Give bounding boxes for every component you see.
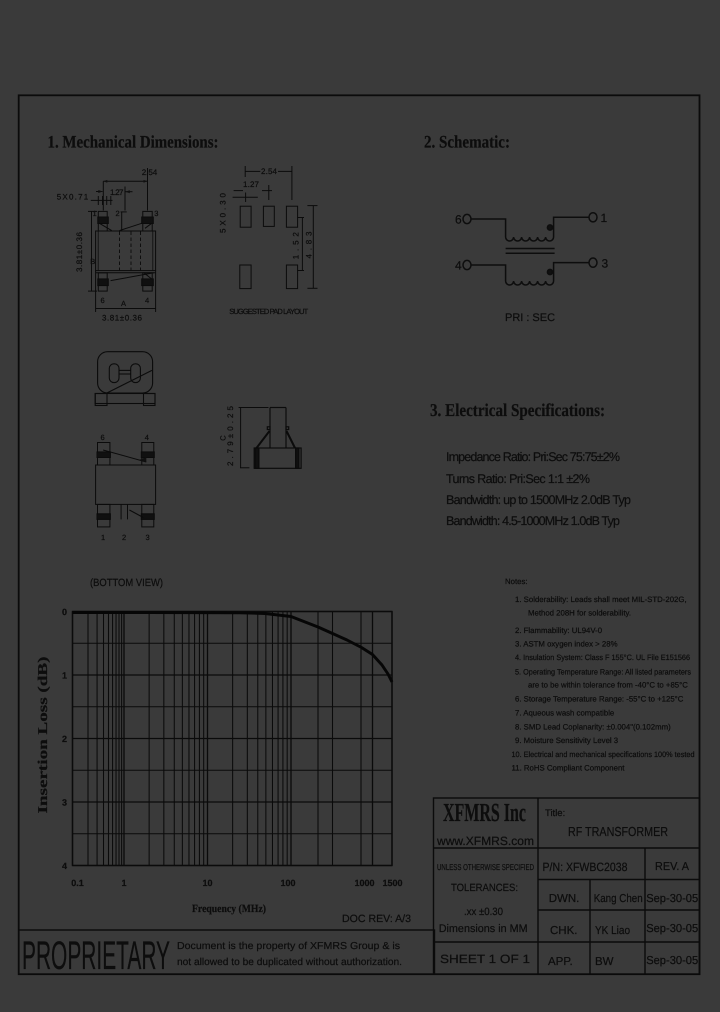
svg-text:.xx ±0.30: .xx ±0.30 (464, 906, 503, 918)
svg-text:REV. A: REV. A (655, 861, 689, 873)
svg-text:Frequency (MHz): Frequency (MHz) (192, 903, 266, 915)
svg-text:UNLESS OTHERWISE SPECIFIED: UNLESS OTHERWISE SPECIFIED (437, 862, 534, 872)
svg-text:3: 3 (154, 209, 158, 218)
svg-text:C: C (219, 435, 228, 441)
svg-text:XFMRS Inc: XFMRS Inc (443, 798, 526, 827)
svg-text:6: 6 (455, 213, 462, 227)
svg-text:Sep-30-05: Sep-30-05 (646, 923, 698, 935)
svg-text:1: 1 (121, 878, 126, 888)
svg-text:9. Moisture Sensitivity Level: 9. Moisture Sensitivity Level 3 (515, 736, 618, 745)
svg-text:Document is the property of XF: Document is the property of XFMRS Group … (177, 941, 400, 952)
svg-text:3: 3 (62, 798, 67, 808)
svg-text:3. Electrical Specifications: 3. Electrical Specifications: (430, 400, 605, 420)
svg-text:Insertion Loss (dB): Insertion Loss (dB) (35, 657, 50, 814)
svg-text:2: 2 (62, 734, 67, 744)
svg-text:TOLERANCES:: TOLERANCES: (451, 882, 518, 894)
svg-text:SHEET 1 OF 1: SHEET 1 OF 1 (440, 952, 530, 966)
svg-text:3. ASTM oxygen index > 28%: 3. ASTM oxygen index > 28% (515, 640, 618, 649)
svg-text:2. Schematic:: 2. Schematic: (424, 132, 510, 152)
svg-text:2.54: 2.54 (142, 168, 158, 177)
svg-text:PRI : SEC: PRI : SEC (505, 312, 555, 324)
svg-text:(BOTTOM VIEW): (BOTTOM VIEW) (90, 577, 163, 589)
svg-text:4: 4 (145, 296, 149, 305)
svg-text:1: 1 (62, 671, 67, 681)
svg-text:Sep-30-05: Sep-30-05 (646, 955, 698, 967)
svg-text:3.81±0.36: 3.81±0.36 (102, 314, 143, 323)
svg-text:2: 2 (122, 533, 126, 542)
svg-text:Impedance Ratio: Pri:Sec 75:75: Impedance Ratio: Pri:Sec 75:75±2% (446, 450, 620, 464)
svg-text:Dimensions in MM: Dimensions in MM (439, 923, 528, 935)
svg-text:not allowed to be duplicated w: not allowed to be duplicated without aut… (177, 957, 402, 968)
svg-text:7. Aqueous wash compatible: 7. Aqueous wash compatible (515, 709, 614, 718)
svg-text:6: 6 (101, 433, 105, 442)
svg-text:P/N: XFWBC2038: P/N: XFWBC2038 (543, 860, 628, 874)
svg-text:APP.: APP. (548, 956, 573, 968)
svg-text:1.52: 1.52 (292, 232, 301, 260)
svg-text:DOC REV: A/3: DOC REV: A/3 (342, 913, 411, 925)
svg-text:2: 2 (116, 209, 120, 218)
svg-text:100: 100 (280, 878, 295, 888)
svg-text:10. Electrical and mechanical: 10. Electrical and mechanical specificat… (512, 750, 695, 759)
svg-text:3: 3 (602, 257, 609, 271)
svg-text:1. Solderability: Leads shall: 1. Solderability: Leads shall meet MIL-S… (515, 595, 687, 604)
svg-text:1: 1 (601, 211, 608, 225)
svg-text:6. Storage Temperature Range:: 6. Storage Temperature Range: -55°C to +… (515, 695, 684, 704)
svg-text:0: 0 (62, 607, 67, 617)
svg-text:Bandwidth: 4.5-1000MHz 1.0dB T: Bandwidth: 4.5-1000MHz 1.0dB Typ (446, 514, 620, 528)
svg-text:1. Mechanical Dimensions:: 1. Mechanical Dimensions: (48, 132, 219, 152)
svg-text:4.83: 4.83 (305, 231, 314, 259)
svg-text:6: 6 (101, 296, 105, 305)
svg-text:1.27: 1.27 (110, 188, 124, 197)
svg-text:PROPRIETARY: PROPRIETARY (22, 934, 170, 978)
svg-text:Method 208H for solderability.: Method 208H for solderability. (528, 609, 631, 618)
svg-text:0.1: 0.1 (71, 878, 84, 888)
svg-text:DWN.: DWN. (549, 893, 580, 905)
svg-text:Bandwidth: up to 1500MHz 2.0dB: Bandwidth: up to 1500MHz 2.0dB Typ (446, 493, 631, 507)
svg-text:4: 4 (145, 433, 149, 442)
svg-text:8. SMD Lead Coplanarity: ±0.0: 8. SMD Lead Coplanarity: ±0.004"(0.102mm… (515, 723, 671, 732)
svg-text:1000: 1000 (354, 878, 374, 888)
svg-text:3.81±0.36: 3.81±0.36 (75, 231, 84, 272)
svg-text:1500: 1500 (382, 878, 402, 888)
svg-text:11. RoHS Compliant Component: 11. RoHS Compliant Component (512, 764, 626, 773)
svg-text:BW: BW (595, 956, 614, 968)
svg-text:1.27: 1.27 (243, 180, 260, 189)
svg-text:1: 1 (101, 533, 105, 542)
svg-text:5X0.30: 5X0.30 (219, 192, 228, 233)
svg-text:5. Operating Temperature Rang: 5. Operating Temperature Range: All list… (515, 668, 691, 677)
svg-text:Notes:: Notes: (505, 577, 528, 586)
svg-text:5X0.71: 5X0.71 (57, 193, 89, 202)
svg-text:Sep-30-05: Sep-30-05 (646, 893, 698, 905)
svg-text:10: 10 (202, 878, 212, 888)
svg-text:B: B (90, 257, 95, 266)
svg-text:Kang Chen: Kang Chen (594, 893, 643, 905)
svg-text:YK Liao: YK Liao (595, 925, 630, 937)
svg-text:2. Flammability: UL94V-0: 2. Flammability: UL94V-0 (515, 626, 603, 635)
svg-text:2.54: 2.54 (261, 167, 278, 176)
svg-text:4: 4 (455, 259, 462, 273)
svg-text:1: 1 (93, 209, 97, 218)
svg-text:Title:: Title: (545, 808, 565, 819)
svg-text:SUGGESTED PAD LAYOUT: SUGGESTED PAD LAYOUT (229, 307, 308, 316)
svg-text:Turns Ratio: Pri:Sec 1:1 ±2%: Turns Ratio: Pri:Sec 1:1 ±2% (446, 472, 590, 486)
svg-text:RF TRANSFORMER: RF TRANSFORMER (568, 824, 668, 839)
svg-text:www.XFMRS.com: www.XFMRS.com (436, 834, 534, 848)
svg-text:4: 4 (62, 861, 67, 871)
svg-text:4. Insulation System: Class F: 4. Insulation System: Class F 155°C. UL … (515, 653, 690, 662)
svg-text:CHK.: CHK. (550, 925, 577, 937)
svg-text:A: A (121, 299, 126, 308)
svg-text:3: 3 (146, 533, 150, 542)
svg-text:are to be within tolerance fro: are to be within tolerance from -40°C to… (528, 681, 688, 690)
